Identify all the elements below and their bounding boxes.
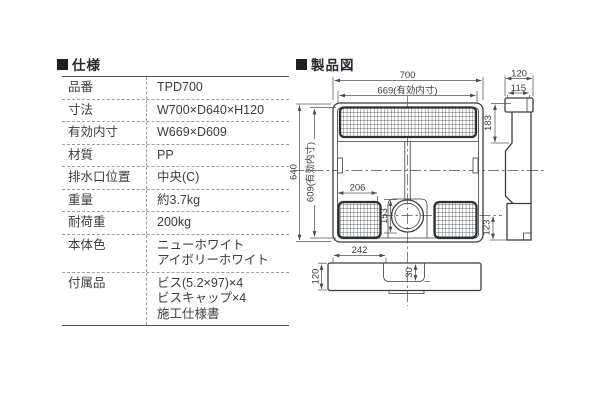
table-row: 重量 約3.7kg	[62, 190, 289, 213]
spec-label: 本体色	[62, 235, 146, 272]
top-grate	[340, 108, 476, 138]
table-row: 材質 PP	[62, 145, 289, 168]
spec-label: 寸法	[62, 100, 146, 122]
side-contour	[506, 112, 514, 204]
spec-value: W669×D609	[146, 122, 289, 144]
right-clip	[473, 158, 478, 173]
table-row: 品番 TPD700	[62, 77, 289, 100]
dim-front-offset: 242	[352, 245, 368, 256]
left-clip	[338, 158, 343, 173]
dim-side-lower-height: 123	[482, 220, 493, 236]
dim-top-width-inner: 669(有効内寸)	[377, 85, 437, 97]
dim-drain-recess-depth: 30	[404, 267, 415, 278]
side-rim	[505, 98, 533, 112]
spec-label: 重量	[62, 190, 146, 212]
spec-label: 品番	[62, 77, 146, 99]
side-base	[507, 204, 531, 241]
spec-table: 品番 TPD700 寸法 W700×D640×H120 有効内寸 W669×D6…	[62, 76, 289, 326]
side-base-notch	[524, 233, 532, 240]
dim-top-width: 700	[400, 70, 416, 81]
left-grate	[339, 202, 381, 238]
dim-grid-width: 206	[350, 183, 366, 194]
spec-value: TPD700	[146, 77, 289, 99]
section-bullet-icon	[57, 59, 68, 70]
spec-label: 排水口位置	[62, 167, 146, 189]
spec-section-heading: 仕様	[57, 54, 101, 74]
table-row: 寸法 W700×D640×H120	[62, 100, 289, 123]
table-row: 有効内寸 W669×D609	[62, 122, 289, 145]
spec-value: 中央(C)	[146, 167, 289, 189]
dim-side-upper-height: 183	[483, 115, 494, 131]
table-row: 付属品 ビス(5.2×97)×4 ビスキャップ×4 施工仕様書	[62, 273, 289, 326]
spec-value: PP	[146, 145, 289, 167]
side-view	[505, 98, 533, 240]
spec-label: 耐荷重	[62, 212, 146, 234]
table-row: 耐荷重 200kg	[62, 212, 289, 235]
table-row: 排水口位置 中央(C)	[62, 167, 289, 190]
product-diagram: 700 669(有効内寸) 640 609(有効内寸) 206 153 242	[285, 62, 600, 312]
dim-top-depth-inner: 609(有効内寸)	[305, 142, 317, 202]
right-grate	[435, 202, 477, 238]
spec-value: W700×D640×H120	[146, 100, 289, 122]
spec-value: ニューホワイト アイボリーホワイト	[146, 235, 289, 272]
spec-label: 材質	[62, 145, 146, 167]
spec-heading-label: 仕様	[72, 54, 101, 74]
dim-side-width: 120	[511, 69, 527, 80]
table-row: 本体色 ニューホワイト アイボリーホワイト	[62, 235, 289, 273]
spec-value: 約3.7kg	[146, 190, 289, 212]
dim-side-width-inner: 115	[511, 83, 526, 94]
spec-value: 200kg	[146, 212, 289, 234]
dim-front-height: 120	[310, 269, 321, 285]
spec-value: ビス(5.2×97)×4 ビスキャップ×4 施工仕様書	[146, 273, 289, 326]
spec-label: 有効内寸	[62, 122, 146, 144]
dim-top-depth: 640	[289, 164, 300, 180]
dimension-annotations: 700 669(有効内寸) 640 609(有効内寸) 206 153 242	[289, 69, 534, 291]
top-view	[333, 103, 483, 242]
spec-label: 付属品	[62, 273, 146, 326]
dim-drain-offset: 153	[379, 208, 390, 224]
